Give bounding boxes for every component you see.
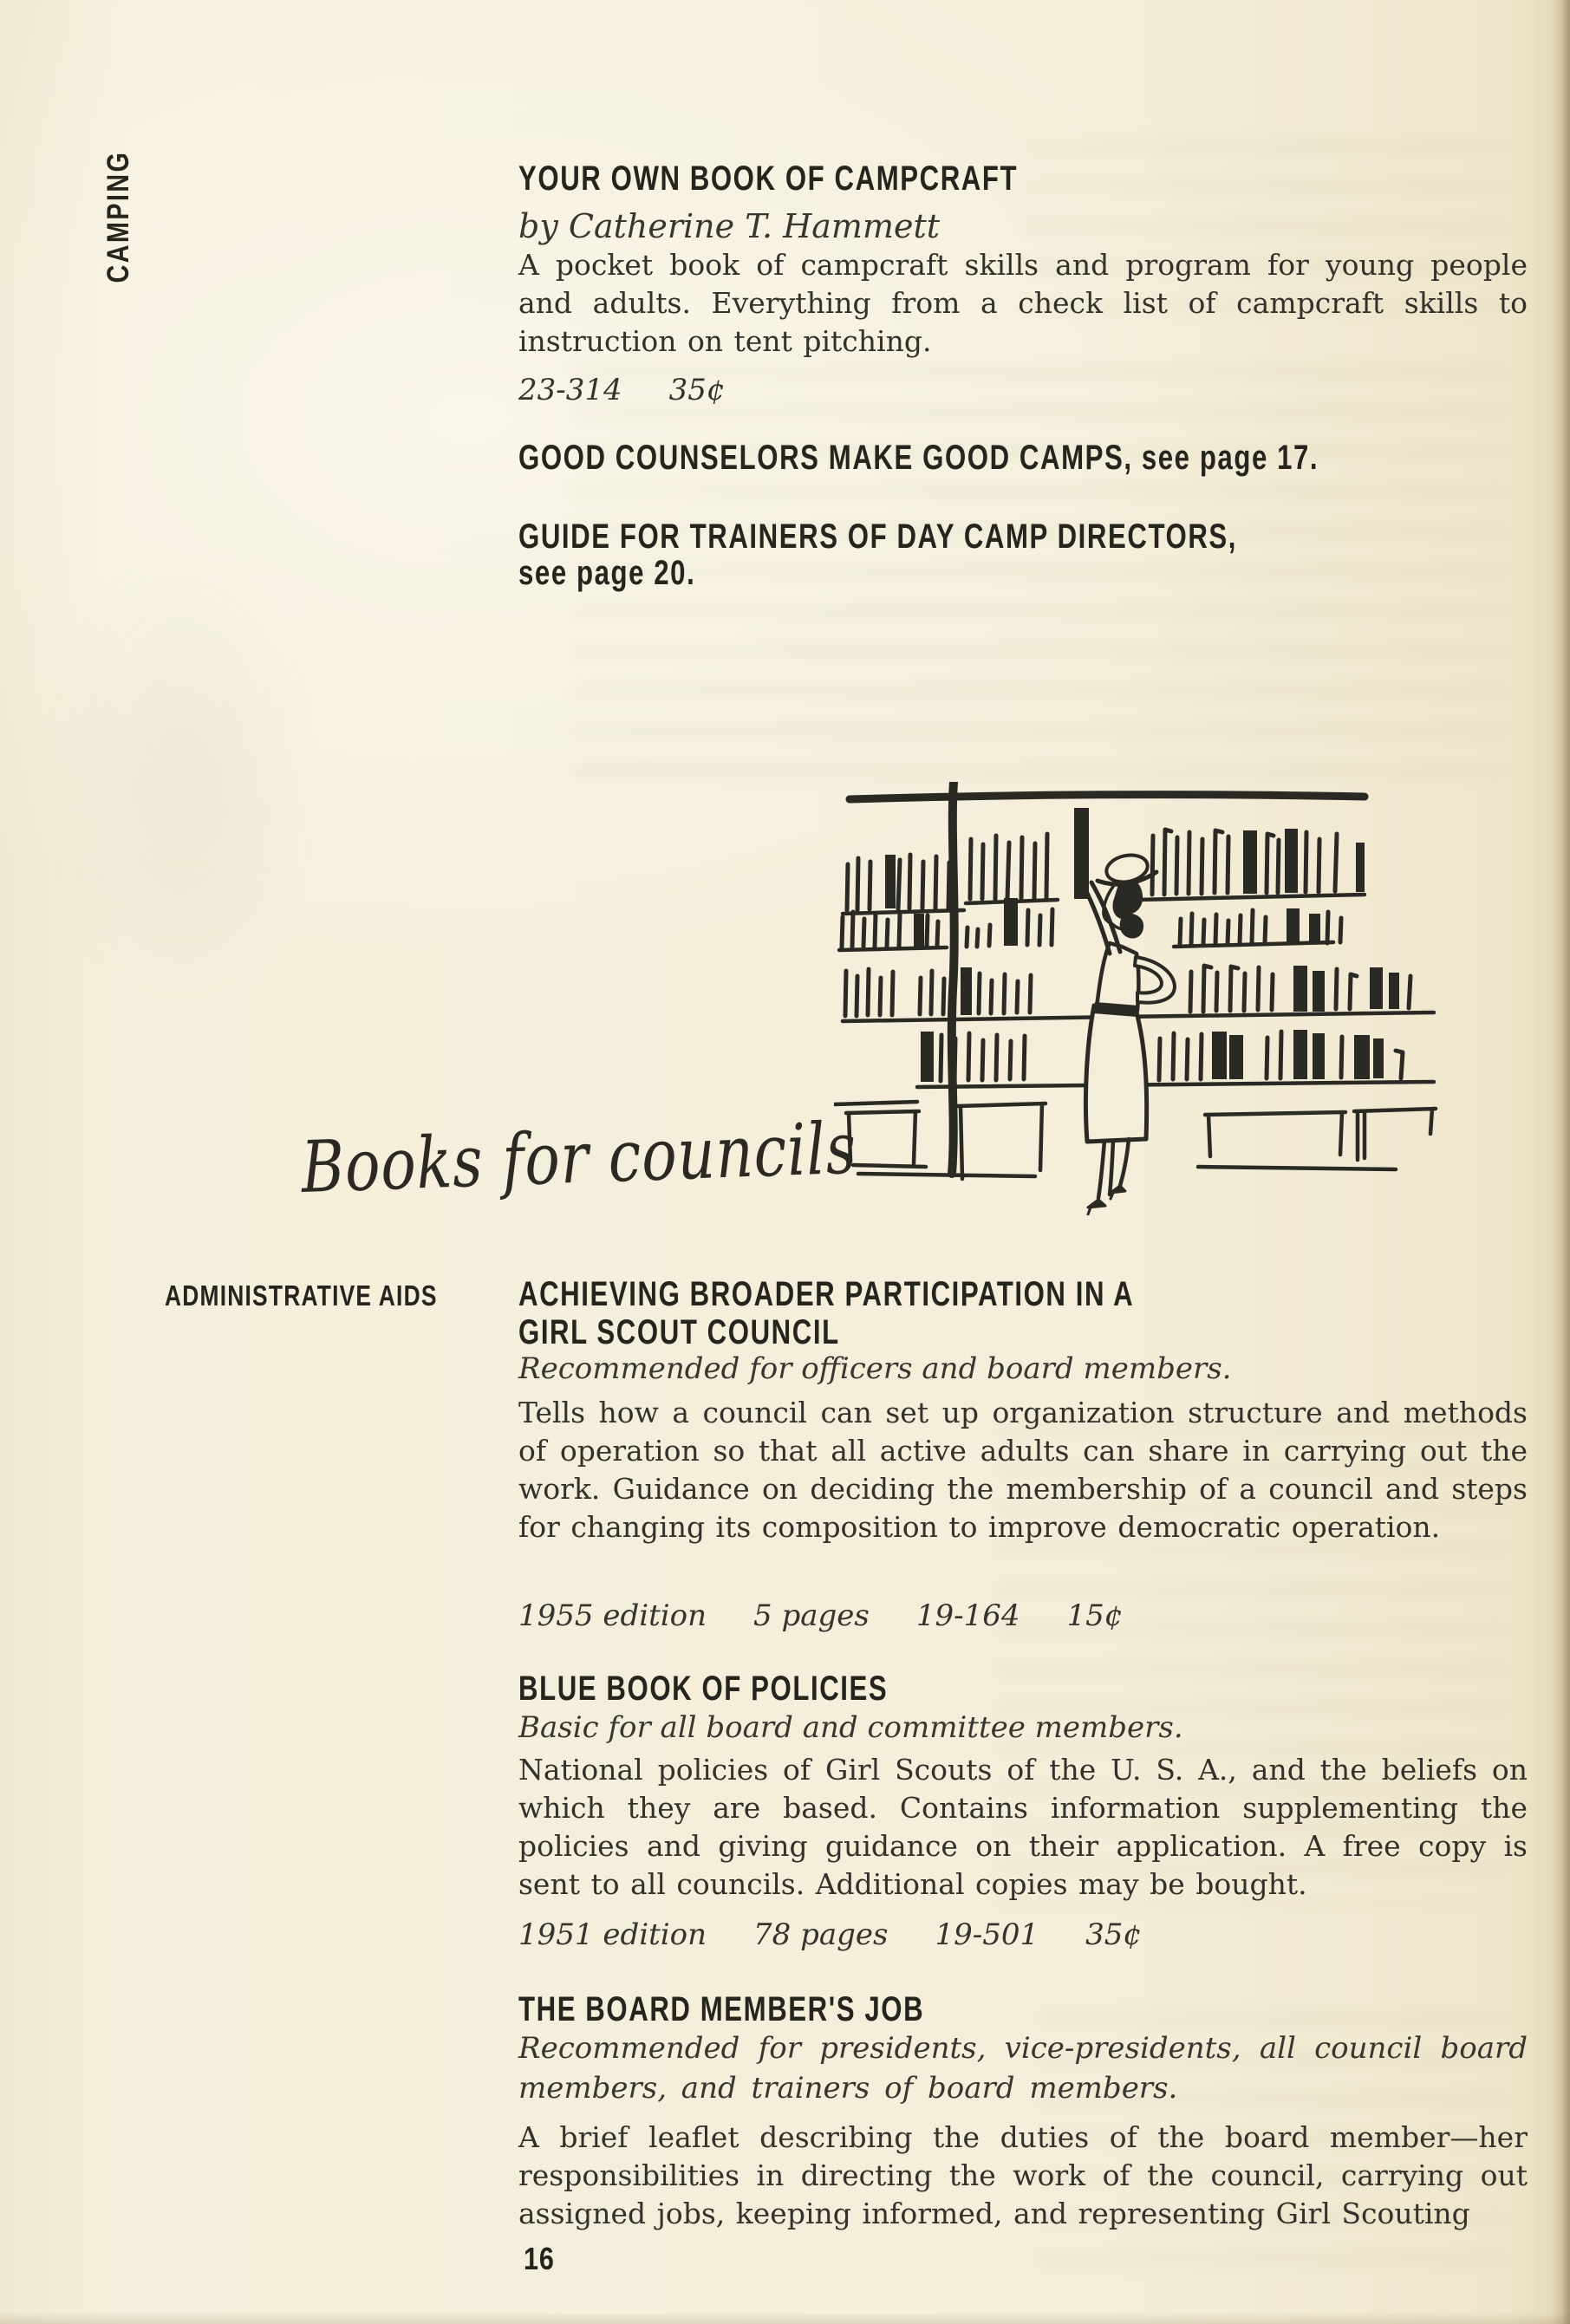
cross-reference: GUIDE FOR TRAINERS OF DAY CAMP DIRECTORS… (518, 517, 1528, 593)
akimbo-arm (1135, 957, 1175, 1003)
price: 15¢ (1066, 1598, 1123, 1633)
page-number: 16 (524, 2241, 555, 2277)
book-title: YOUR OWN BOOK OF CAMPCRAFT (518, 159, 1018, 199)
shoes (1088, 1186, 1125, 1214)
cross-reference: GOOD COUNSELORS MAKE GOOD CAMPS, see pag… (518, 438, 1528, 478)
book-description: Tells how a council can set up organizat… (518, 1394, 1528, 1546)
cross-ref-text: GOOD COUNSELORS MAKE GOOD CAMPS, see pag… (518, 438, 1319, 478)
book-title-line1: BLUE BOOK OF POLICIES (518, 1669, 888, 1709)
skirt (1085, 1006, 1146, 1142)
book-description: National policies of Girl Scouts of the … (518, 1751, 1528, 1904)
category-label-block: ADMINISTRATIVE AIDS (165, 1276, 505, 1316)
page-edge-shadow (0, 2312, 1570, 2324)
page-edge-shadow (1551, 0, 1570, 2324)
catalog-line: 23-31435¢ (518, 373, 1528, 407)
edition: 1955 edition (518, 1598, 707, 1633)
campcraft-book-title-block: YOUR OWN BOOK OF CAMPCRAFT (518, 159, 1528, 199)
woman-figure (1076, 851, 1175, 1214)
edition: 1951 edition (518, 1917, 707, 1952)
bleedthrough-sketch (43, 537, 321, 1023)
council-book-entry: ACHIEVING BROADER PARTICIPATION IN A GIR… (518, 1274, 1528, 1352)
book-audience: Basic for all board and committee member… (518, 1708, 1528, 1748)
book-description: A brief leaflet describing the duties of… (518, 2119, 1528, 2233)
shelf-top-rail (850, 795, 1365, 799)
camping-label: CAMPING (99, 151, 139, 283)
catalog-number: 19-164 (916, 1598, 1020, 1633)
book-audience: Recommended for presidents, vice-preside… (518, 2028, 1528, 2108)
catalog-number: 23-314 (518, 373, 622, 407)
pages: 5 pages (753, 1598, 870, 1633)
council-book-entry: THE BOARD MEMBER'S JOB (518, 1989, 1528, 2029)
catalog-number: 19-501 (935, 1917, 1039, 1952)
book-title-line1: THE BOARD MEMBER'S JOB (518, 1989, 924, 2029)
bodice (1097, 943, 1138, 1011)
price: 35¢ (669, 373, 726, 407)
council-book-entry: BLUE BOOK OF POLICIES (518, 1669, 1528, 1709)
catalog-line: 1955 edition5 pages19-16415¢ (518, 1598, 1528, 1633)
book-title-line2: GIRL SCOUT COUNCIL (518, 1312, 840, 1352)
cross-ref-text-line1: GUIDE FOR TRAINERS OF DAY CAMP DIRECTORS… (518, 517, 1237, 557)
pages: 78 pages (753, 1917, 888, 1952)
catalog-page: CAMPING YOUR OWN BOOK OF CAMPCRAFT by Ca… (0, 0, 1570, 2324)
cross-ref-text-line2: see page 20. (518, 553, 695, 593)
book-title-line1: ACHIEVING BROADER PARTICIPATION IN A (518, 1274, 1134, 1314)
section-margin-label: CAMPING (99, 136, 139, 297)
book-audience: Recommended for officers and board membe… (518, 1349, 1528, 1389)
category-label: ADMINISTRATIVE AIDS (165, 1276, 438, 1316)
price: 35¢ (1085, 1917, 1142, 1952)
book-byline: by Catherine T. Hammett (518, 206, 1528, 246)
book-description: A pocket book of campcraft skills and pr… (518, 246, 1528, 361)
catalog-line: 1951 edition78 pages19-50135¢ (518, 1917, 1528, 1952)
